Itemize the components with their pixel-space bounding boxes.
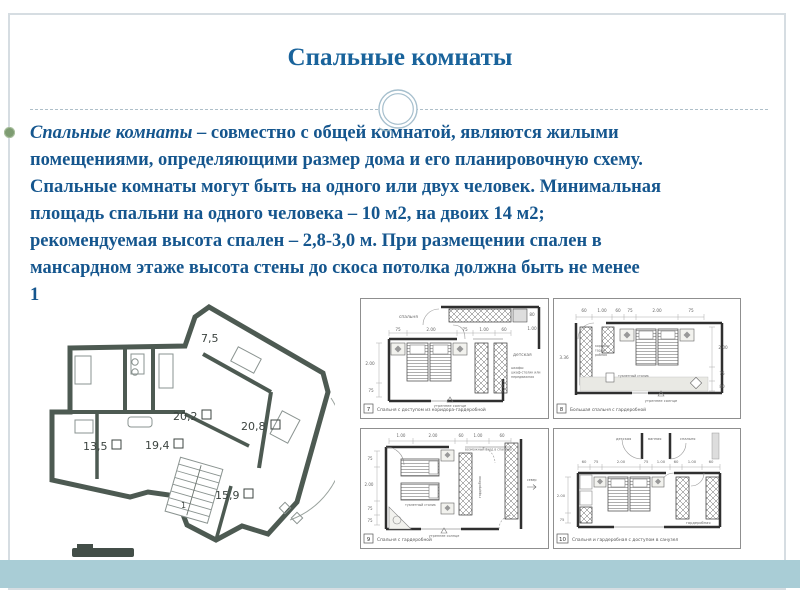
room-area-label: 19,4 — [145, 439, 170, 452]
svg-text:75: 75 — [594, 459, 599, 464]
svg-text:утреннее солнце: утреннее солнце — [429, 534, 460, 538]
svg-text:75: 75 — [644, 459, 649, 464]
svg-text:1.00: 1.00 — [474, 433, 483, 438]
wardrobe-icon — [475, 343, 488, 393]
left-cabinets — [580, 475, 592, 523]
wardrobe-icon — [505, 443, 518, 519]
svg-text:60: 60 — [501, 327, 507, 332]
svg-text:60: 60 — [674, 459, 679, 464]
svg-text:2.00: 2.00 — [429, 433, 438, 438]
body-line: рекомендуемая высота спален – 2,8-3,0 м.… — [30, 228, 796, 255]
diagram-caption-row: 10 Спальня и гардеробная с доступом в са… — [557, 534, 678, 543]
svg-text:передвижная: передвижная — [511, 375, 534, 379]
svg-text:1.00: 1.00 — [527, 326, 537, 331]
diagram-number: 8 — [560, 407, 564, 413]
bed-icon — [401, 459, 439, 500]
ring-ornament-icon — [374, 86, 422, 134]
room-area-label: 13,5 — [83, 440, 108, 453]
footer-band — [0, 560, 800, 588]
diagram-caption: Спальня с гардеробной — [377, 536, 432, 543]
svg-text:60: 60 — [499, 433, 505, 438]
svg-text:2.00: 2.00 — [718, 345, 728, 350]
svg-text:2.00: 2.00 — [557, 493, 566, 498]
svg-text:75: 75 — [367, 506, 373, 511]
svg-text:75: 75 — [367, 518, 373, 523]
svg-text:спальня: спальня — [680, 437, 695, 441]
svg-text:гарде-: гарде- — [595, 349, 606, 353]
wardrobe-icon — [580, 327, 592, 385]
wardrobe-icon — [449, 309, 511, 322]
slide-title: Спальные комнаты — [0, 44, 800, 72]
svg-text:75: 75 — [688, 308, 694, 313]
svg-text:гардеробная: гардеробная — [686, 521, 710, 525]
bed-icon — [636, 329, 678, 365]
entrance-canopy — [72, 544, 134, 557]
svg-text:1.00: 1.00 — [657, 459, 666, 464]
diagram-caption: Большая спальня с гардеробной — [570, 406, 646, 413]
bullet-icon — [4, 127, 15, 138]
svg-text:75: 75 — [395, 327, 401, 332]
body-paragraph: Спальные комнаты – совместно с общей ком… — [30, 120, 796, 309]
bed-icon — [407, 343, 451, 381]
svg-text:шкафы:: шкафы: — [511, 366, 524, 370]
svg-text:1.00: 1.00 — [597, 308, 607, 313]
body-line: мансардном этаже высота стены до скоса п… — [30, 255, 796, 282]
svg-text:спальня: спальня — [399, 315, 418, 320]
room-area-label: 7,5 — [201, 332, 219, 345]
svg-text:75: 75 — [627, 308, 633, 313]
svg-text:2.00: 2.00 — [426, 327, 436, 332]
wardrobe-icon — [706, 477, 719, 519]
nightstand-icon — [594, 477, 664, 487]
bed-icon — [608, 477, 650, 511]
bedroom-diagram-10: 60 75 2.00 75 1.00 60 1.00 60 2.00 75 де… — [553, 428, 741, 549]
svg-text:2.00: 2.00 — [652, 308, 662, 313]
svg-text:60: 60 — [458, 433, 464, 438]
svg-text:шкаф-столик или: шкаф-столик или — [511, 371, 540, 375]
diagram-number: 7 — [367, 407, 371, 413]
svg-text:1.00: 1.00 — [397, 433, 406, 438]
diagram-caption-row: 9 Спальня с гардеробной — [364, 534, 432, 543]
svg-text:север: север — [527, 478, 537, 482]
north-arrow-icon — [527, 485, 536, 490]
svg-text:возможный вход в спальню: возможный вход в спальню — [465, 448, 512, 452]
nightstand-icon — [620, 329, 694, 341]
svg-text:2.00: 2.00 — [365, 482, 374, 487]
wardrobe-icon — [676, 477, 689, 519]
nightstand-icon — [441, 450, 454, 514]
room-area-label: 20,2 — [173, 410, 198, 423]
svg-text:75: 75 — [368, 388, 374, 393]
svg-text:туалетный столик: туалетный столик — [618, 374, 649, 378]
room-area-label: 20,8 — [241, 420, 266, 433]
svg-text:75: 75 — [719, 371, 725, 376]
svg-text:детская: детская — [616, 437, 631, 441]
body-line: помещениями, определяющими размер дома и… — [30, 147, 796, 174]
svg-text:75: 75 — [462, 327, 468, 332]
svg-text:туалетный столик: туалетный столик — [405, 503, 436, 507]
svg-text:2.00: 2.00 — [617, 459, 626, 464]
svg-text:детская: детская — [513, 353, 532, 358]
sun-label: утреннее солнце — [434, 397, 467, 408]
bedroom-diagram-8: 60 1.00 60 75 2.00 75 3.36 2.00 75 80 ко… — [553, 298, 741, 419]
svg-text:3.36: 3.36 — [559, 355, 569, 360]
wardrobe-icon — [494, 343, 507, 393]
svg-text:80: 80 — [529, 312, 535, 317]
svg-text:60: 60 — [582, 459, 587, 464]
bedroom-diagram-9: 1.00 2.00 60 1.00 60 75 2.00 75 75 возмо… — [360, 428, 549, 549]
wardrobe-icon — [459, 453, 472, 515]
svg-text:60: 60 — [581, 308, 587, 313]
table-icon — [606, 373, 614, 382]
floor-plan-image: 7,5 20,2 20,8 13,5 19,4 15,9 1 — [35, 296, 335, 560]
svg-text:60: 60 — [615, 308, 621, 313]
svg-text:гардеробная: гардеробная — [478, 476, 482, 498]
body-line: площадь спальни на одного человека – 10 … — [30, 201, 796, 228]
room-area-label: 15,9 — [215, 489, 240, 502]
svg-text:1.00: 1.00 — [479, 327, 489, 332]
diagram-caption: Спальня с доступом из коридора-гардеробн… — [377, 406, 486, 413]
diagram-caption-row: 7 Спальня с доступом из коридора-гардеро… — [364, 404, 486, 413]
bedroom-diagram-7: 75 2.00 75 1.00 60 2.00 75 80 1.00 спаль… — [360, 298, 549, 419]
svg-text:коридор-: коридор- — [595, 344, 610, 348]
svg-text:утреннее солнце: утреннее солнце — [645, 399, 678, 403]
stair-label: 1 — [181, 501, 186, 510]
nightstand-icon — [391, 343, 467, 355]
sun-label: утреннее солнце — [429, 528, 460, 538]
slide: { "slide": { "title": "Спальные комнаты"… — [0, 0, 800, 600]
svg-text:робная: робная — [595, 353, 607, 357]
svg-text:1.00: 1.00 — [688, 459, 697, 464]
svg-text:80: 80 — [719, 384, 725, 389]
body-line: Спальные комнаты могут быть на одного ил… — [30, 174, 796, 201]
svg-text:75: 75 — [367, 456, 373, 461]
diagram-number: 9 — [367, 537, 371, 543]
svg-text:ванная: ванная — [648, 437, 661, 441]
body-lead-italic: Спальные комнаты — [30, 123, 192, 143]
svg-text:75: 75 — [560, 517, 565, 522]
svg-text:60: 60 — [709, 459, 714, 464]
diagram-number: 10 — [559, 537, 566, 543]
svg-text:2.00: 2.00 — [365, 361, 375, 366]
dresser-corner-icon — [389, 507, 411, 529]
diagram-caption-row: 8 Большая спальня с гардеробной — [557, 404, 646, 413]
diagram-caption: Спальня и гардеробная с доступом в сануз… — [572, 536, 678, 543]
